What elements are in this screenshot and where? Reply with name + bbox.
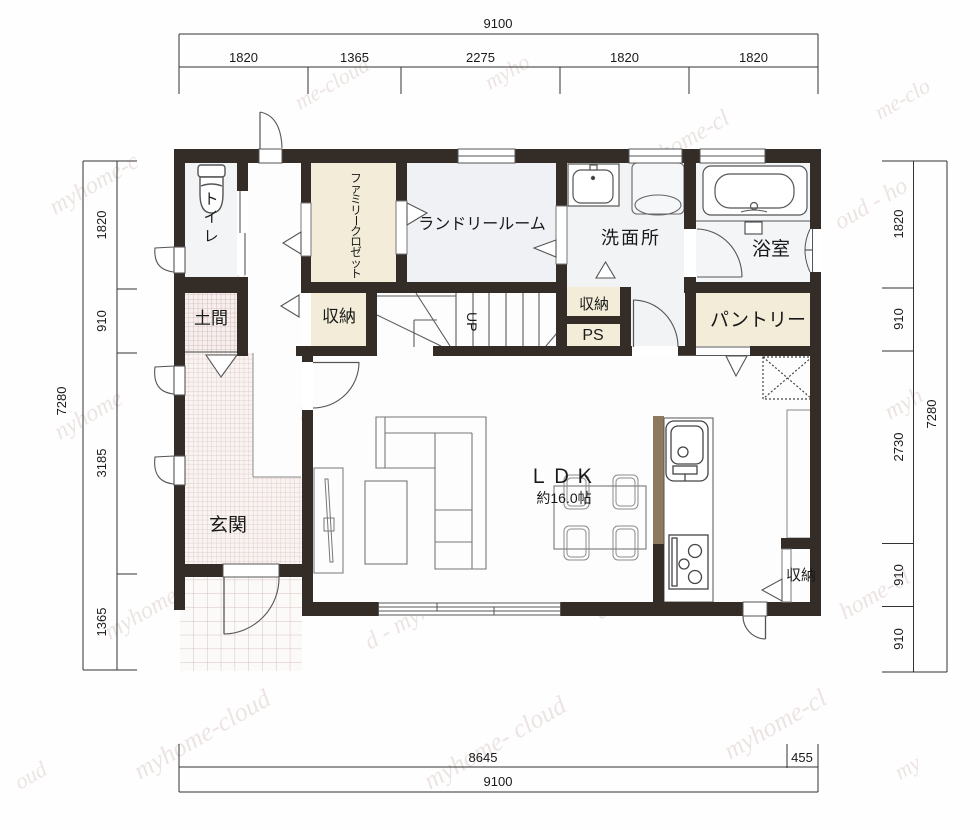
svg-text:7280: 7280 xyxy=(54,387,69,416)
svg-text:9100: 9100 xyxy=(484,774,513,789)
svg-text:ト: ト xyxy=(350,268,362,280)
svg-text:2730: 2730 xyxy=(891,433,906,462)
svg-text:ト: ト xyxy=(203,191,218,208)
svg-text:1365: 1365 xyxy=(94,608,109,637)
svg-text:PS: PS xyxy=(582,327,603,344)
svg-text:レ: レ xyxy=(203,228,218,245)
svg-text:455: 455 xyxy=(791,750,813,765)
svg-text:収納: 収納 xyxy=(579,296,609,313)
svg-text:910: 910 xyxy=(891,564,906,586)
svg-text:1820: 1820 xyxy=(610,50,639,65)
svg-text:ー: ー xyxy=(349,215,361,227)
svg-text:ランドリールーム: ランドリールーム xyxy=(418,216,546,233)
svg-text:910: 910 xyxy=(891,308,906,330)
svg-text:約16.0帖: 約16.0帖 xyxy=(536,490,591,506)
svg-text:洗面所: 洗面所 xyxy=(601,228,661,248)
svg-text:1820: 1820 xyxy=(229,50,258,65)
svg-text:1365: 1365 xyxy=(340,50,369,65)
svg-text:玄関: 玄関 xyxy=(209,514,247,536)
svg-text:1820: 1820 xyxy=(739,50,768,65)
svg-text:イ: イ xyxy=(203,209,218,226)
svg-text:収納: 収納 xyxy=(786,567,816,584)
svg-text:3185: 3185 xyxy=(94,449,109,478)
svg-text:7280: 7280 xyxy=(924,400,939,429)
svg-text:収納: 収納 xyxy=(322,307,356,326)
svg-text:パントリー: パントリー xyxy=(710,310,806,331)
svg-text:8645: 8645 xyxy=(469,750,498,765)
svg-text:910: 910 xyxy=(891,628,906,650)
svg-text:土間: 土間 xyxy=(194,309,228,328)
svg-text:ＬＤＫ: ＬＤＫ xyxy=(529,466,598,488)
svg-text:910: 910 xyxy=(94,310,109,332)
svg-text:1820: 1820 xyxy=(891,210,906,239)
svg-text:2275: 2275 xyxy=(466,50,495,65)
svg-text:浴室: 浴室 xyxy=(752,238,790,260)
svg-text:9100: 9100 xyxy=(484,16,513,31)
svg-text:UP: UP xyxy=(464,312,480,331)
svg-text:1820: 1820 xyxy=(94,211,109,240)
